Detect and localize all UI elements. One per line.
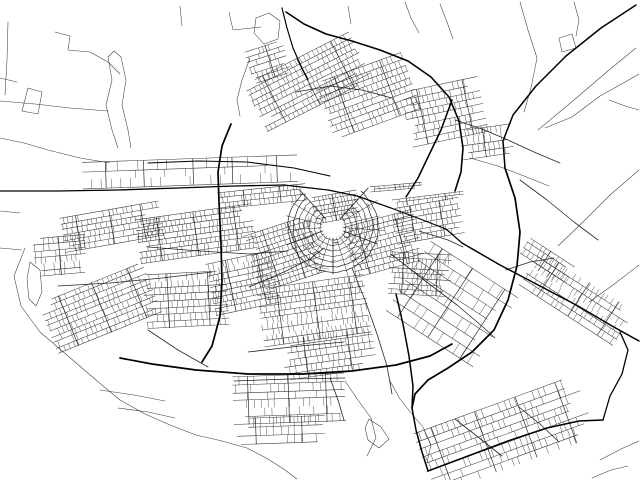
street-map xyxy=(0,0,640,480)
map-background xyxy=(0,0,640,480)
map-viewport xyxy=(0,0,640,480)
